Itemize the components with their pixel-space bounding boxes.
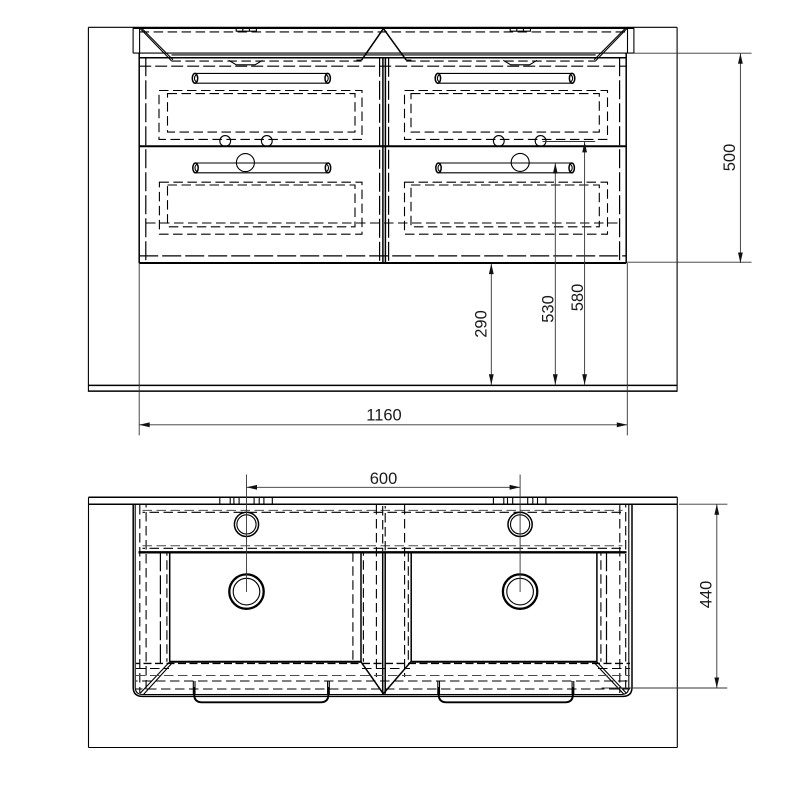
svg-text:440: 440 [698, 581, 716, 609]
svg-text:500: 500 [721, 144, 739, 172]
svg-text:530: 530 [540, 295, 558, 323]
svg-text:290: 290 [473, 310, 491, 338]
svg-text:1160: 1160 [366, 407, 401, 425]
svg-text:580: 580 [569, 284, 587, 312]
svg-text:600: 600 [370, 470, 398, 488]
